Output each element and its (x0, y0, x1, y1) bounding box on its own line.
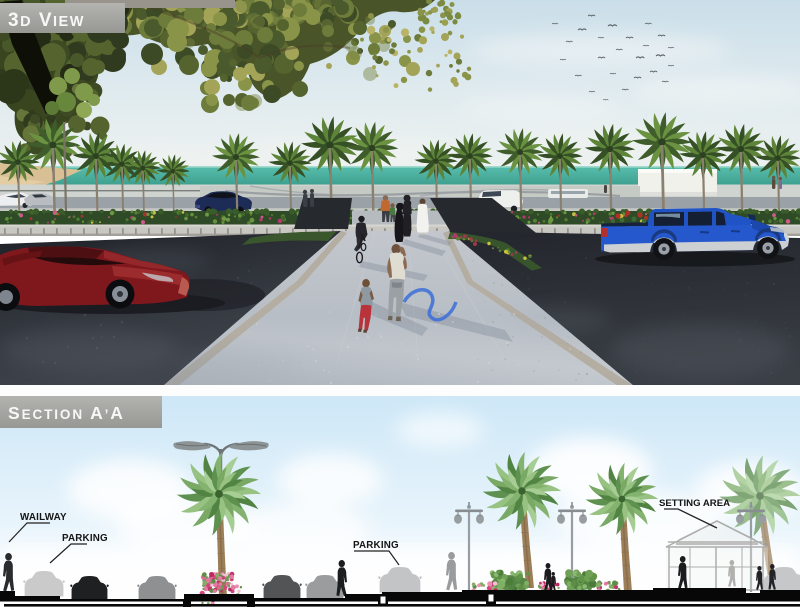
svg-text:PARKING: PARKING (353, 540, 399, 551)
svg-text:PARKING: PARKING (62, 533, 108, 544)
svg-text:SETTING AREA: SETTING AREA (659, 498, 730, 509)
svg-text:3D VIEW: 3D VIEW (8, 10, 85, 31)
svg-text:WAILWAY: WAILWAY (20, 512, 67, 523)
